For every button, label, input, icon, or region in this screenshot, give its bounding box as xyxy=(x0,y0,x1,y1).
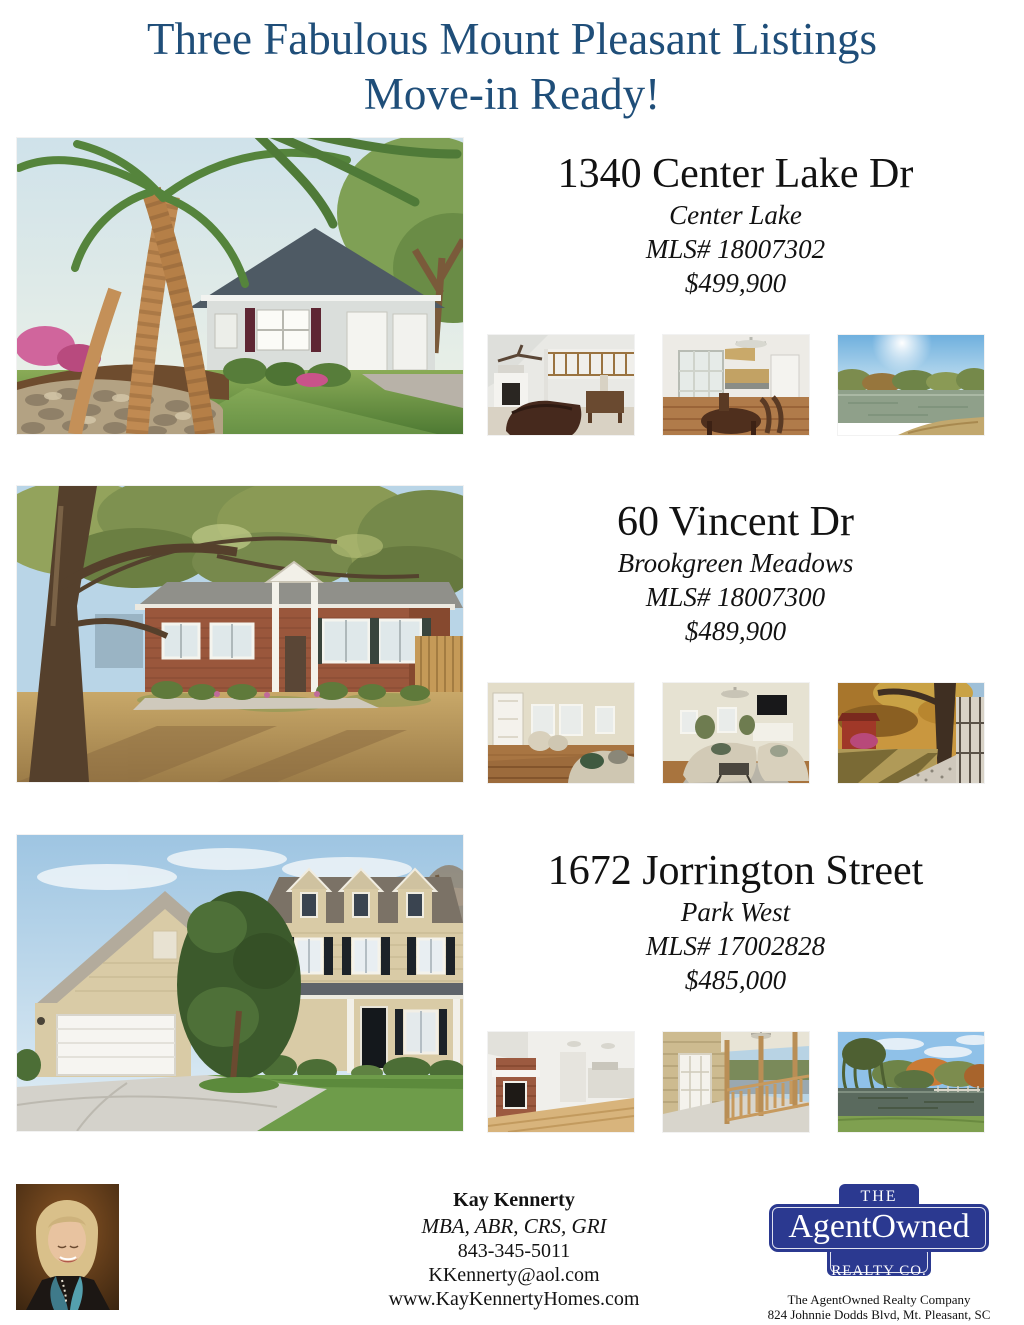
listing-2-info: 60 Vincent Dr Brookgreen Meadows MLS# 18… xyxy=(463,486,1008,783)
thumb-living-room-photo xyxy=(488,335,634,435)
listing-card-3: 1672 Jorrington Street Park West MLS# 17… xyxy=(17,835,1008,1132)
listing-3-address: 1672 Jorrington Street xyxy=(548,847,924,895)
listing-2-neighborhood: Brookgreen Meadows xyxy=(618,546,854,580)
main-photo-listing-2 xyxy=(17,486,463,782)
thumb-lake-photo xyxy=(838,335,984,435)
agent-phone: 843-345-5011 xyxy=(314,1239,714,1263)
listing-2-thumbnails xyxy=(488,683,984,783)
brokerage-company: The AgentOwned Realty Company xyxy=(750,1292,1008,1307)
brick-ranch-photo xyxy=(17,486,463,782)
agent-headshot xyxy=(16,1184,119,1310)
thumb-fireplace-room-photo xyxy=(488,1032,634,1132)
living-tv-thumb xyxy=(663,683,809,783)
logo-name-box: AgentOwned xyxy=(769,1204,989,1252)
palm-house-photo xyxy=(17,138,463,434)
brokerage-block: THE AgentOwned REALTY CO. TM The AgentOw… xyxy=(750,1184,1008,1325)
listing-3-thumbnails xyxy=(488,1032,984,1132)
listing-1-info: 1340 Center Lake Dr Center Lake MLS# 180… xyxy=(463,138,1008,435)
agent-designations: MBA, ABR, CRS, GRI xyxy=(314,1213,714,1239)
fireplace-room-thumb xyxy=(488,1032,634,1132)
listing-2-address: 60 Vincent Dr xyxy=(617,498,854,546)
listing-3-mls: MLS# 17002828 xyxy=(646,929,825,963)
kitchen-thumb xyxy=(663,335,809,435)
screened-porch-thumb xyxy=(663,1032,809,1132)
main-photo-listing-1 xyxy=(17,138,463,434)
thumb-living-tv-photo xyxy=(663,683,809,783)
footer: Kay Kennerty MBA, ABR, CRS, GRI 843-345-… xyxy=(16,1184,1008,1325)
two-story-house-photo xyxy=(17,835,463,1131)
brokerage-address: 824 Johnnie Dodds Blvd, Mt. Pleasant, SC… xyxy=(750,1307,1008,1325)
brokerage-text: The AgentOwned Realty Company 824 Johnni… xyxy=(750,1292,1008,1325)
thumb-kitchen-photo xyxy=(663,335,809,435)
listing-1-thumbnails xyxy=(488,335,984,435)
lake-thumb xyxy=(838,335,984,435)
thumb-pond-photo xyxy=(838,1032,984,1132)
listing-3-neighborhood: Park West xyxy=(681,895,790,929)
title-line-2: Move-in Ready! xyxy=(0,67,1024,122)
entry-room-thumb xyxy=(488,683,634,783)
listing-1-price: $499,900 xyxy=(685,266,786,300)
thumb-entry-room-photo xyxy=(488,683,634,783)
page-title: Three Fabulous Mount Pleasant Listings M… xyxy=(0,0,1024,122)
listing-2-price: $489,900 xyxy=(685,614,786,648)
pond-thumb xyxy=(838,1032,984,1132)
listing-1-neighborhood: Center Lake xyxy=(669,198,802,232)
listing-2-mls: MLS# 18007300 xyxy=(646,580,825,614)
agent-info: Kay Kennerty MBA, ABR, CRS, GRI 843-345-… xyxy=(314,1184,714,1311)
agent-website: www.KayKennertyHomes.com xyxy=(314,1287,714,1311)
thumb-backyard-oak-photo xyxy=(838,683,984,783)
title-line-1: Three Fabulous Mount Pleasant Listings xyxy=(0,12,1024,67)
listing-card-2: 60 Vincent Dr Brookgreen Meadows MLS# 18… xyxy=(17,486,1008,783)
living-room-thumb xyxy=(488,335,634,435)
agent-email: KKennerty@aol.com xyxy=(314,1263,714,1287)
listing-1-address: 1340 Center Lake Dr xyxy=(558,150,914,198)
agentowned-logo: THE AgentOwned REALTY CO. TM xyxy=(769,1184,989,1276)
listing-3-price: $485,000 xyxy=(685,963,786,997)
flyer-page: Three Fabulous Mount Pleasant Listings M… xyxy=(0,0,1024,1325)
agent-photo xyxy=(16,1184,119,1310)
thumb-screened-porch-photo xyxy=(663,1032,809,1132)
listing-card-1: 1340 Center Lake Dr Center Lake MLS# 180… xyxy=(17,138,1008,435)
agent-name: Kay Kennerty xyxy=(314,1188,714,1213)
main-photo-listing-3 xyxy=(17,835,463,1131)
listing-3-info: 1672 Jorrington Street Park West MLS# 17… xyxy=(463,835,1008,1132)
listing-1-mls: MLS# 18007302 xyxy=(646,232,825,266)
backyard-oak-thumb xyxy=(838,683,984,783)
